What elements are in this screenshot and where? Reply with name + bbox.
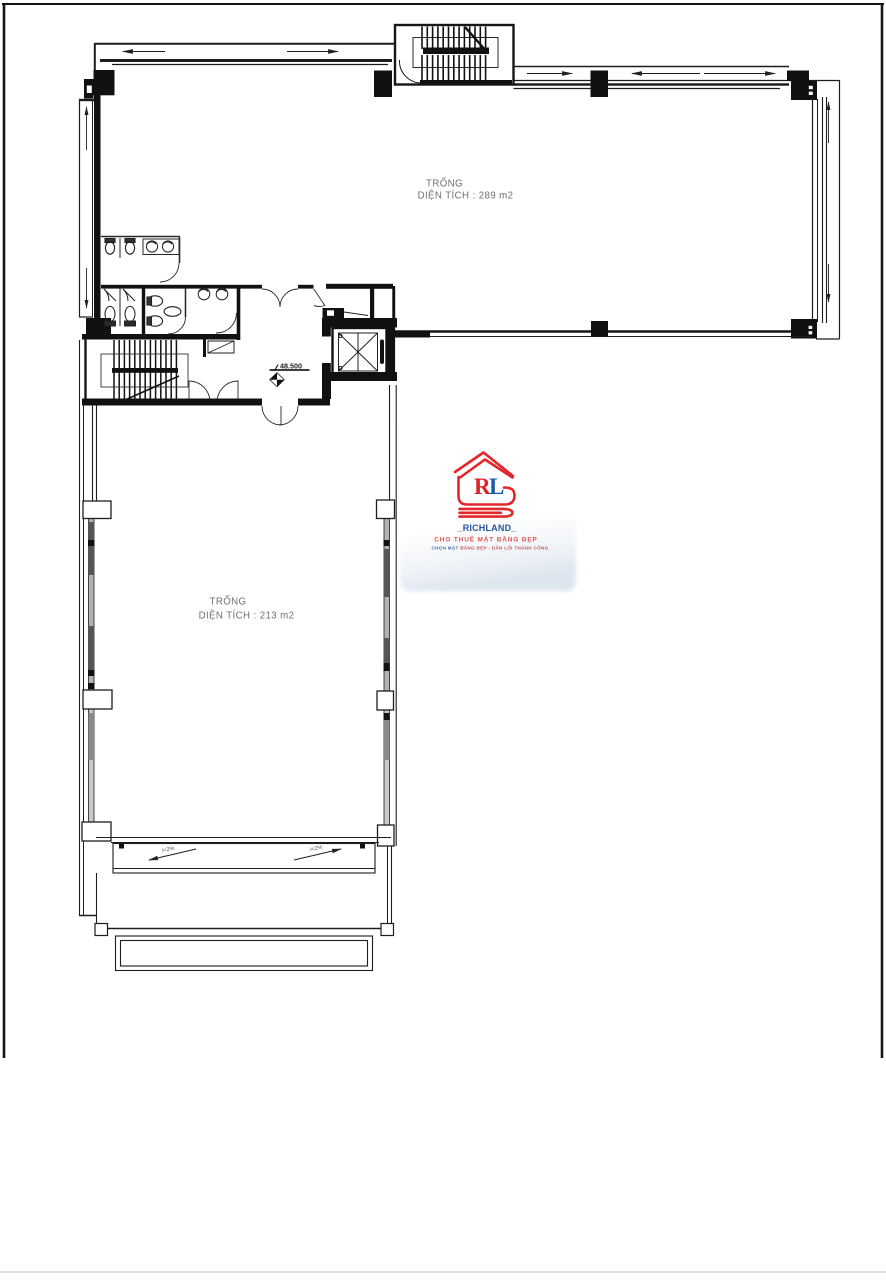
svg-text:_RICHLAND_: _RICHLAND_ <box>456 523 517 533</box>
svg-text:TRỐNG: TRỐNG <box>426 178 463 190</box>
svg-text:TRỐNG: TRỐNG <box>210 596 247 608</box>
svg-text:DIỆN TÍCH : 213 m2: DIỆN TÍCH : 213 m2 <box>199 611 295 622</box>
svg-text:CHỌN MẶT BẰNG ĐẸP - DẪN LỐI TH: CHỌN MẶT BẰNG ĐẸP - DẪN LỐI THÀNH CÔNG <box>432 544 549 551</box>
svg-text:DIỆN TÍCH : 289 m2: DIỆN TÍCH : 289 m2 <box>418 191 514 202</box>
svg-text:L: L <box>489 474 504 499</box>
svg-text:i=2%: i=2% <box>162 846 175 854</box>
svg-text:CHO THUÊ MẶT BẰNG ĐẸP: CHO THUÊ MẶT BẰNG ĐẸP <box>434 535 537 544</box>
svg-text:i=2%: i=2% <box>310 845 323 853</box>
